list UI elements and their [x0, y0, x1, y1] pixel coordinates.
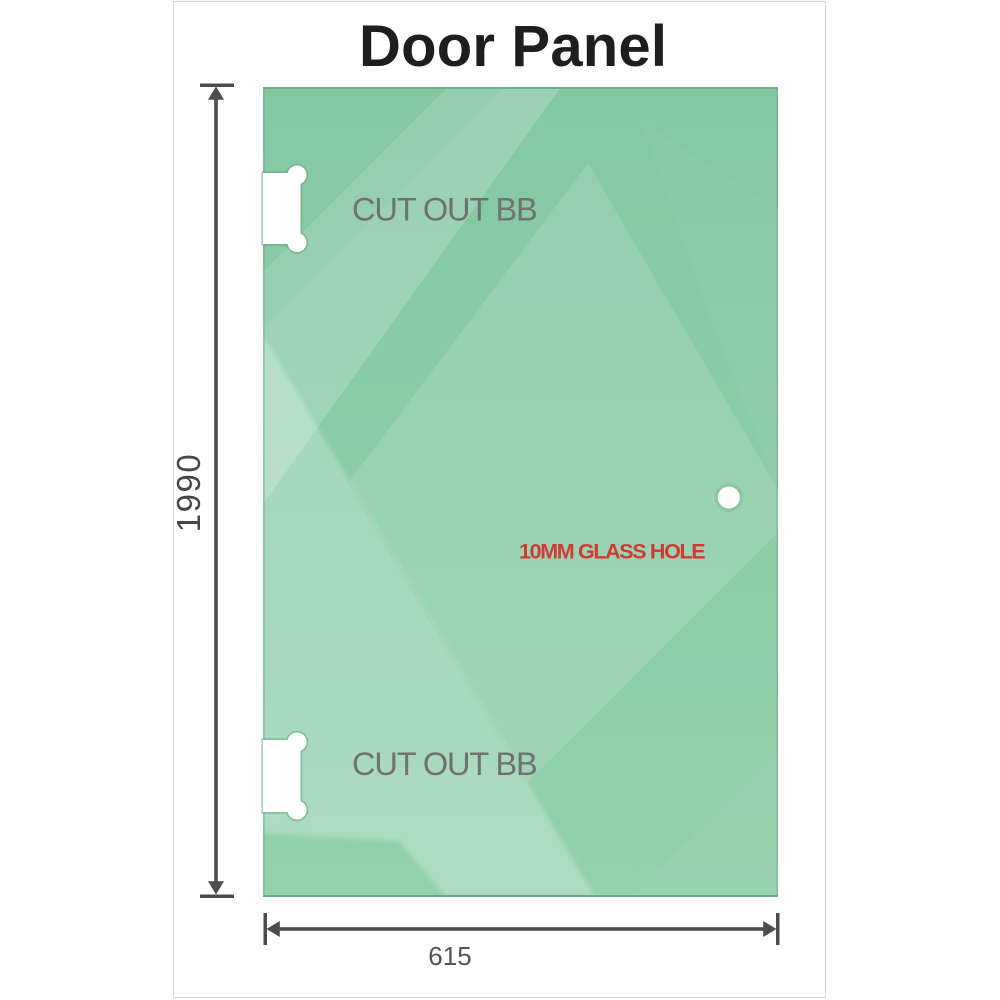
svg-text:CUT OUT BB: CUT OUT BB: [352, 746, 537, 782]
svg-text:Door Panel: Door Panel: [359, 14, 667, 79]
svg-text:615: 615: [428, 941, 471, 971]
svg-text:10MM GLASS HOLE: 10MM GLASS HOLE: [519, 540, 705, 564]
svg-text:CUT OUT BB: CUT OUT BB: [352, 192, 537, 228]
svg-text:1990: 1990: [170, 453, 207, 532]
